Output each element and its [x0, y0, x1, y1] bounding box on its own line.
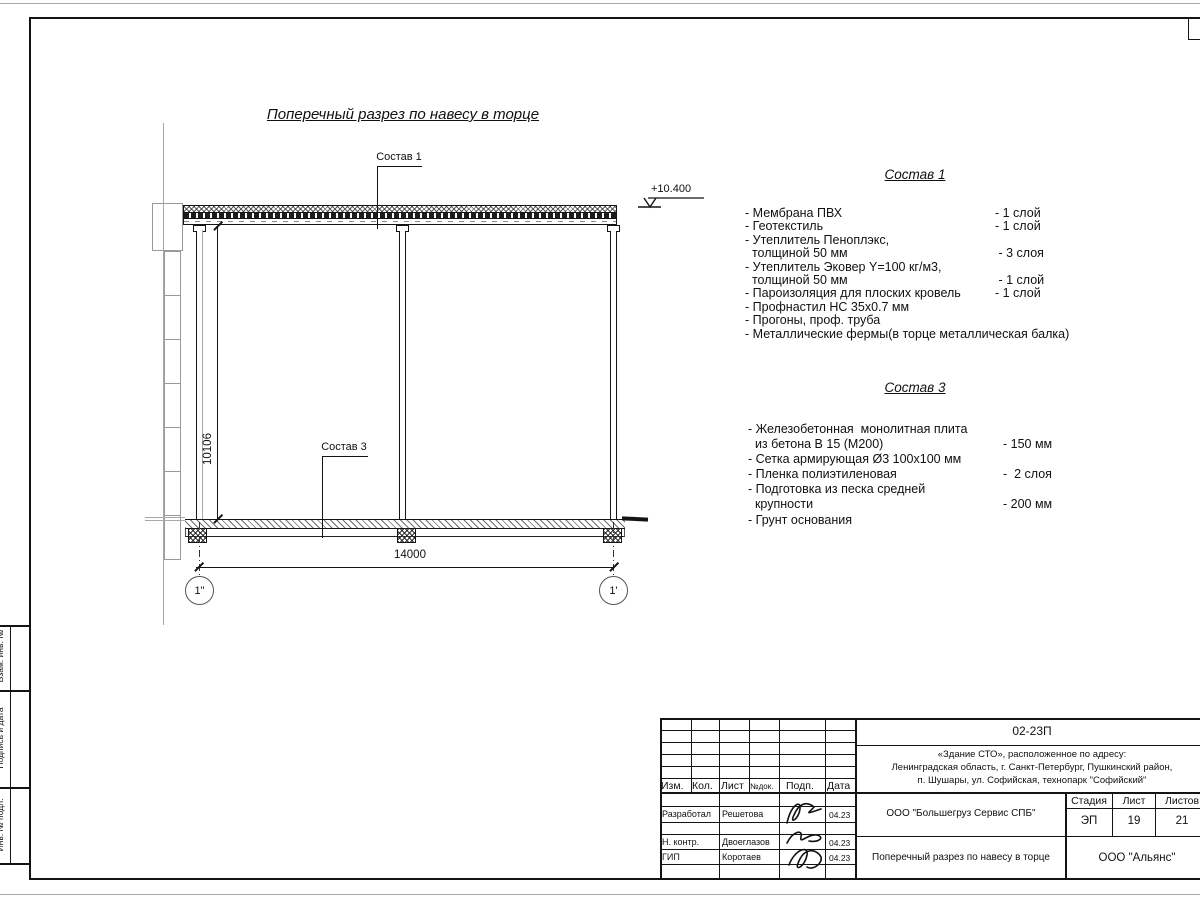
sheets-total: 21 [1156, 815, 1200, 827]
dim-height-text: 10106 [202, 429, 214, 469]
side-label-vzam: Взам. инв. № [0, 625, 9, 687]
axis-label: 1" [194, 585, 204, 597]
name-reshetova: Решетова [722, 809, 763, 819]
address-line-1: «Здание СТО», расположенное по адресу: [857, 749, 1200, 760]
company-name: ООО "Большегруз Сервис СПБ" [857, 808, 1065, 819]
col-data: Дата [827, 780, 850, 792]
list-item: - Железобетонная монолитная плита [748, 422, 1200, 437]
tb-line [660, 742, 855, 743]
compo3-list: - Железобетонная монолитная плита из бет… [748, 422, 1200, 528]
paper-edge-bottom [0, 894, 1200, 895]
side-label-inv: Инв. № подл. [0, 792, 9, 858]
list-item: - Подготовка из песка средней [748, 482, 1200, 497]
axis-bubble-right: 1' [599, 576, 628, 605]
list-item: толщиной 50 мм - 1 слой [745, 274, 1200, 287]
list-item: - Пленка полиэтиленовая- 2 слоя [748, 467, 1200, 482]
signature-razrabotal [781, 795, 825, 831]
compo1-title: Состав 1 [855, 167, 975, 182]
list-item: крупности- 200 мм [748, 497, 1200, 512]
dim-line-horizontal [196, 567, 613, 568]
corner-stamp-box [1188, 17, 1200, 40]
list-item: - Геотекстиль- 1 слой [745, 220, 1200, 233]
col-list: Лист [721, 780, 744, 792]
compo1-list: - Мембрана ПВХ- 1 слой - Геотекстиль- 1 … [745, 207, 1200, 341]
ground-line [145, 517, 185, 518]
callout-underline [322, 456, 368, 457]
roof-membrane-layer [184, 219, 616, 224]
sheet-number: 19 [1113, 815, 1155, 827]
stage-label: Стадия [1066, 795, 1112, 807]
elevation-mark-icon [632, 180, 712, 212]
list-item: - Грунт основания [748, 513, 1200, 528]
tb-line [856, 745, 1200, 746]
stamp-strip-line [0, 690, 29, 692]
col-podp: Подп. [786, 780, 814, 792]
signature-nkontr-gip [779, 827, 831, 875]
list-item: толщиной 50 мм - 3 слоя [745, 247, 1200, 260]
dim-extension-line [202, 230, 203, 519]
list-item: - Прогоны, проф. труба [745, 314, 1200, 327]
role-gip: ГИП [662, 852, 680, 862]
dim-span-text: 14000 [368, 549, 452, 561]
footing-middle [397, 528, 416, 543]
list-item: - Утеплитель Эковер Y=100 кг/м3, [745, 261, 1200, 274]
tb-line [1065, 808, 1200, 809]
callout-leader [322, 456, 323, 538]
date-3: 04.23 [829, 853, 850, 863]
col-izm: Изм. [661, 780, 684, 792]
column-right [610, 231, 617, 520]
list-item: - Металлические фермы(в торце металличес… [745, 328, 1200, 341]
date-1: 04.23 [829, 810, 850, 820]
sheets-label: Листов [1156, 795, 1200, 807]
stamp-strip-line [0, 863, 29, 865]
list-item: - Профнастил НС 35х0.7 мм [745, 301, 1200, 314]
stamp-strip-line [0, 787, 29, 789]
callout-leader [377, 166, 378, 229]
col-ndok: №док. [750, 782, 773, 791]
role-razrabotal: Разработал [662, 809, 711, 819]
list-item: - Сетка армирующая Ø3 100x100 мм [748, 452, 1200, 467]
drawing-sheet: Взам. инв. № Подпись и дата Инв. № подл.… [0, 0, 1200, 900]
tb-line [660, 792, 1200, 794]
callout-sostav3: Состав 3 [304, 441, 384, 453]
tb-line [856, 836, 1200, 837]
role-nkontr: Н. контр. [662, 837, 699, 847]
address-line-2: Ленинградская область, г. Санкт-Петербур… [857, 762, 1200, 773]
doc-number: 02-23П [857, 724, 1200, 738]
list-item: - Утеплитель Пеноплэкс, [745, 234, 1200, 247]
list-item: - Мембрана ПВХ- 1 слой [745, 207, 1200, 220]
compo3-title: Состав 3 [855, 380, 975, 395]
stamp-strip-line [10, 625, 11, 863]
callout-underline [377, 166, 422, 167]
tb-line [660, 806, 855, 807]
ground-line [145, 520, 185, 521]
tb-line [660, 754, 855, 755]
tb-line [660, 822, 855, 823]
callout-sostav1: Состав 1 [359, 151, 439, 163]
paper-edge-top [0, 3, 1200, 4]
axis-bubble-left: 1" [185, 576, 214, 605]
tb-line [660, 778, 855, 779]
roof-decking-layer [184, 212, 616, 219]
tb-line [660, 766, 855, 767]
adjacent-wall-panel [152, 203, 183, 251]
side-label-podpis: Подпись и дата [0, 698, 9, 778]
list-item: - Пароизоляция для плоских кровель- 1 сл… [745, 287, 1200, 300]
dim-line-vertical [217, 226, 218, 519]
list-item: из бетона В 15 (М200)- 150 мм [748, 437, 1200, 452]
column-middle [399, 231, 406, 520]
sheet-label: Лист [1113, 795, 1155, 807]
col-kol: Кол. [692, 780, 713, 792]
footing-left [188, 528, 207, 543]
axis-label: 1' [609, 585, 617, 597]
tb-line [660, 730, 855, 731]
name-dvoeglazov: Двоеглазов [722, 837, 770, 847]
name-korotaev: Коротаев [722, 852, 761, 862]
stage-value: ЭП [1066, 815, 1112, 827]
org-name: ООО "Альянс" [1067, 852, 1200, 864]
address-line-3: п. Шушары, ул. Софийская, технопарк "Соф… [857, 775, 1200, 786]
date-2: 04.23 [829, 838, 850, 848]
view-title: Поперечный разрез по навесу в торце [248, 106, 558, 123]
roof-assembly [183, 205, 617, 225]
sheet-title: Поперечный разрез по навесу в торце [857, 852, 1065, 863]
adjacent-wall-panels [164, 251, 181, 560]
